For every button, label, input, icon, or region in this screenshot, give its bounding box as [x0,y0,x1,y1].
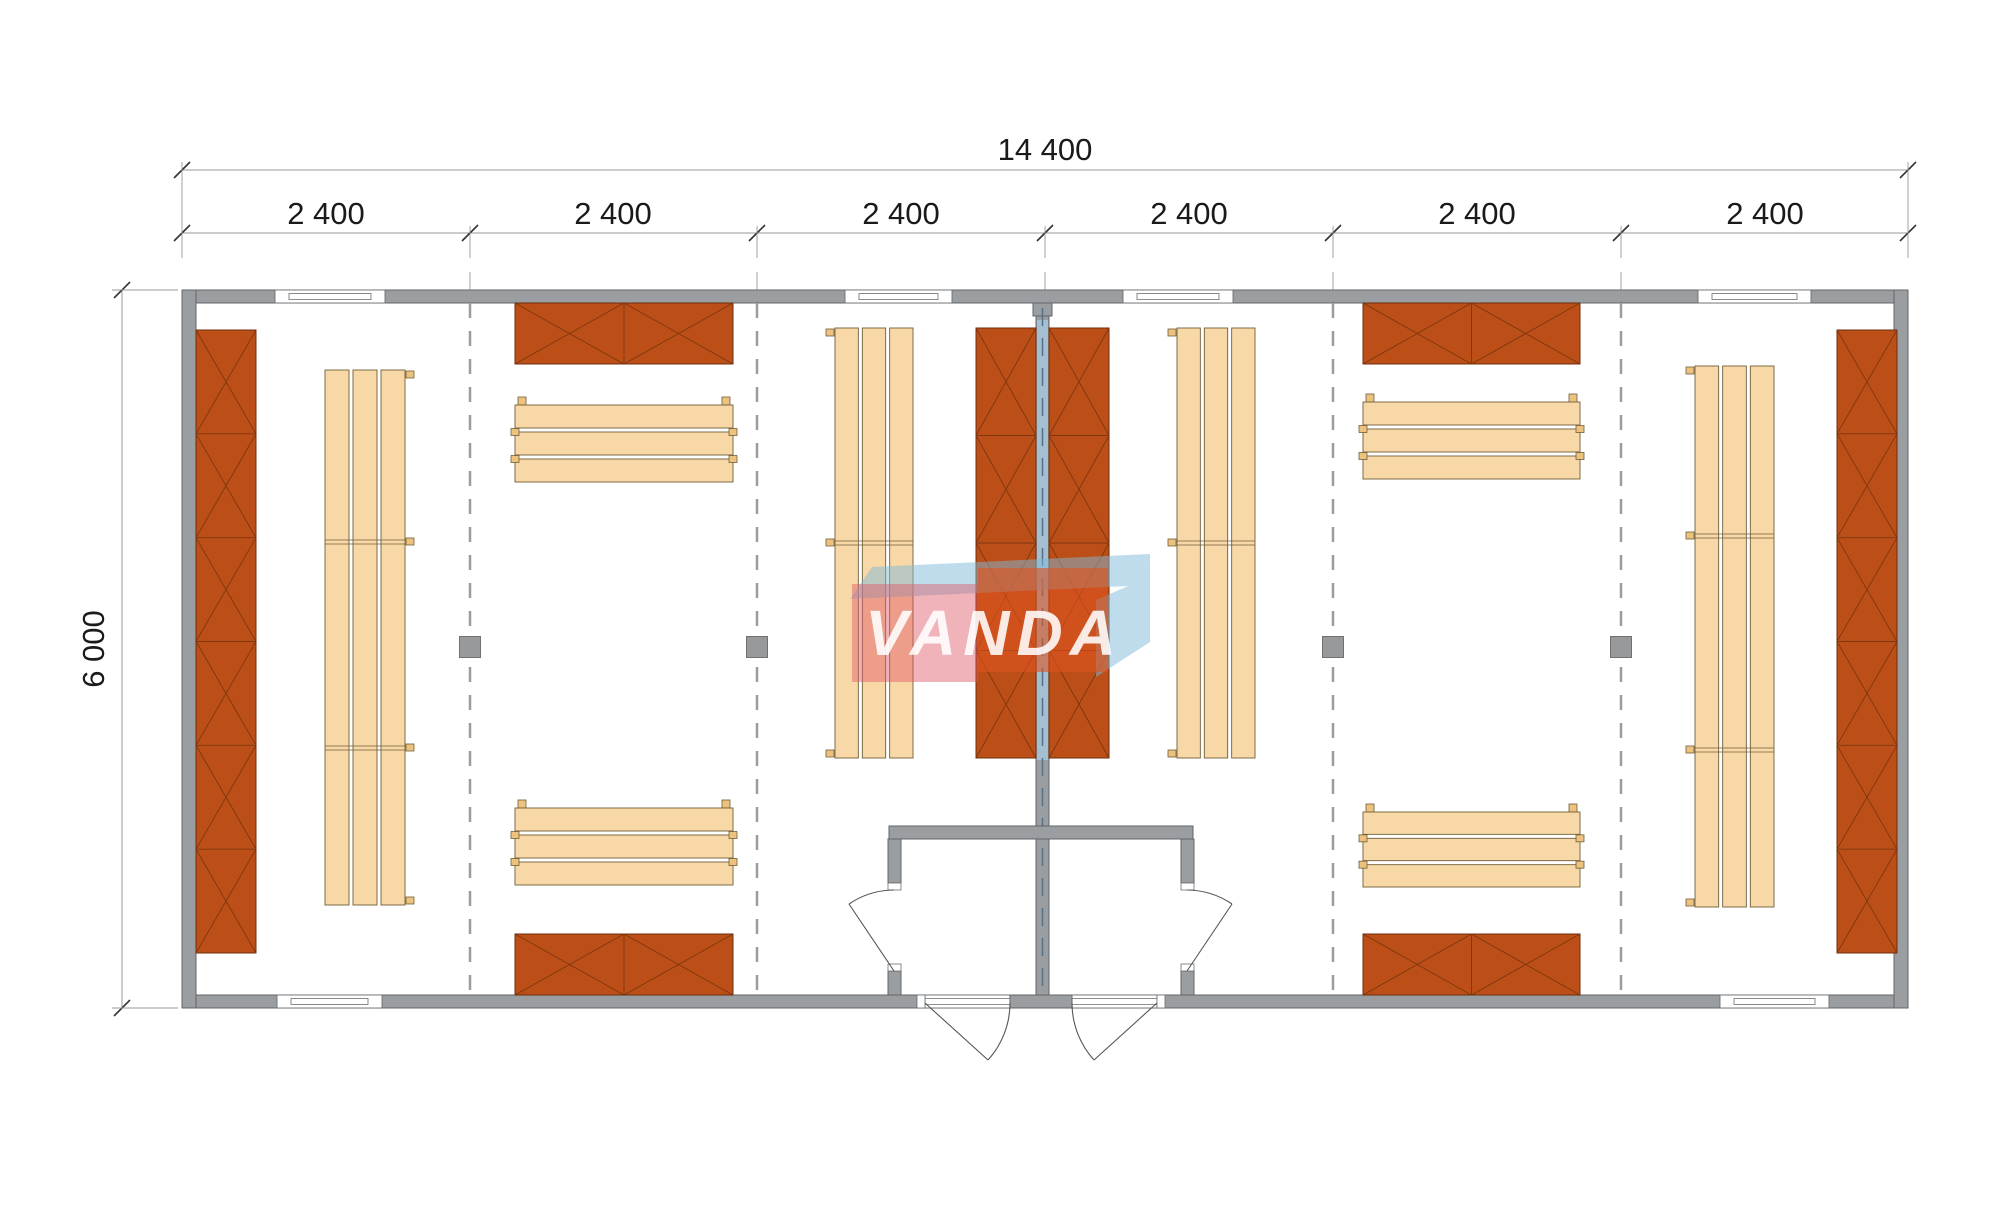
bench-tab [511,832,519,839]
bench-tab [1168,750,1176,757]
overall-width-dim-label: 14 400 [998,132,1093,167]
door-left-side [849,890,894,971]
module-dim-label-3: 2 400 [862,196,940,231]
bench-tab [722,800,730,808]
bench-slat [1177,328,1200,758]
bench-tab [1576,453,1584,460]
bench-slat [1204,328,1227,758]
bench-tab [1576,426,1584,433]
door-opening-left [925,995,1010,1008]
bench-slat [515,432,733,455]
vestibule-wall-right-upper [1181,839,1194,883]
door-jamb [1157,995,1165,1008]
bench-slat [1363,838,1580,860]
door-jamb [888,883,901,890]
bench-tab [729,832,737,839]
bench-tab [1366,804,1374,812]
bench-slat [515,835,733,858]
bench-tab [1686,532,1694,539]
bench-slat [1750,366,1774,907]
vanda-watermark: VANDA [850,554,1150,682]
vestibule-wall-top [889,826,1193,839]
door-exterior-right [1072,1003,1157,1060]
bench-tab [722,397,730,405]
bench-tab [518,397,526,405]
bench-slat [835,328,858,758]
bench-slat [515,862,733,885]
bench-tab [826,539,834,546]
bench-tab [1366,394,1374,402]
bench-slat [1695,366,1719,907]
bench-tab [406,897,414,904]
bench-tab [1359,453,1367,460]
dim-extension-lines [182,162,1908,290]
module-dim-label-2: 2 400 [574,196,652,231]
module-dim-label-4: 2 400 [1150,196,1228,231]
bench-tab [518,800,526,808]
door-jamb [1181,883,1194,890]
bench-tab [406,744,414,751]
structural-post [747,637,768,658]
module-dim-label-5: 2 400 [1438,196,1516,231]
door-exterior-left [925,1003,1010,1060]
module-dim-label-6: 2 400 [1726,196,1804,231]
window-top-2 [845,290,952,303]
bench-slat [1363,429,1580,452]
bench-tab [1686,746,1694,753]
bench-slat [890,328,913,758]
bench-slat [515,405,733,428]
module-dim-label-1: 2 400 [287,196,365,231]
bench-tab [1686,899,1694,906]
vestibule-wall-left-lower [888,971,901,995]
exterior-wall-top [182,290,1908,303]
vestibule-wall-left-upper [888,839,901,883]
door-center-pier [1010,995,1072,1008]
vestibule-wall-right-lower [1181,971,1194,995]
exterior-wall-left [182,290,196,1008]
bench-tab [826,750,834,757]
door-right-side [1187,890,1232,971]
bench-tab [406,371,414,378]
structural-post [460,637,481,658]
window-bottom-1 [277,995,382,1008]
bench-tab [1168,329,1176,336]
structural-post [1611,637,1632,658]
bench-slat [515,808,733,831]
bench-slat [862,328,885,758]
bench-slat [1723,366,1747,907]
bench-tab [1569,804,1577,812]
structural-post [1323,637,1344,658]
bench-tab [511,859,519,866]
bench-tab [729,859,737,866]
bench-tab [1569,394,1577,402]
floor-plan-drawing: 14 400 2 400 2 400 2 400 2 400 2 400 2 4… [0,0,2000,1226]
door-jamb [917,995,925,1008]
bench-slat [1363,456,1580,479]
bench-slat [1363,812,1580,834]
bench-tab [729,456,737,463]
bench-tab [1576,835,1584,842]
window-bottom-2 [1720,995,1829,1008]
bench-slat [1363,865,1580,887]
door-opening-right [1072,995,1157,1008]
bench-slat [381,370,405,905]
bench-tab [729,429,737,436]
depth-dim-label: 6 000 [76,610,111,688]
bench-slat [325,370,349,905]
bench-tab [1359,835,1367,842]
bench-slat [515,459,733,482]
bench-tab [1576,861,1584,868]
window-top-1 [275,290,385,303]
bench-slat [1232,328,1255,758]
window-top-3 [1123,290,1233,303]
watermark-text: VANDA [865,597,1123,669]
bench-tab [1168,539,1176,546]
floor-plan-page: 14 400 2 400 2 400 2 400 2 400 2 400 2 4… [0,0,2000,1226]
bench-tab [1359,861,1367,868]
bench-tab [406,538,414,545]
bench-slat [353,370,377,905]
bench-tab [511,429,519,436]
bench-tab [1359,426,1367,433]
window-top-4 [1698,290,1811,303]
bench-slat [1363,402,1580,425]
bench-tab [1686,367,1694,374]
bench-tab [511,456,519,463]
bench-tab [826,329,834,336]
